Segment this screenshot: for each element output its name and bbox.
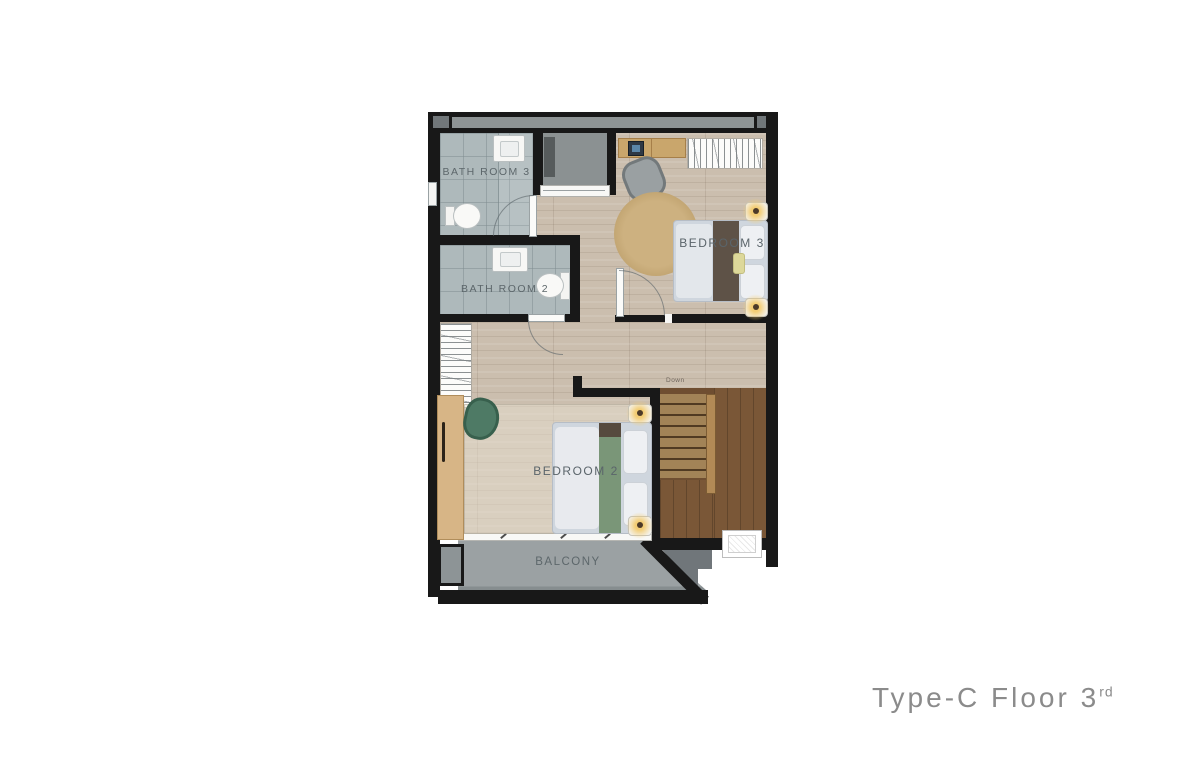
plan-title: Type-C Floor 3rd (872, 682, 1172, 714)
bedroom2-label: BEDROOM 2 (506, 464, 646, 478)
lamp-icon (637, 410, 643, 416)
sink-icon (492, 247, 528, 272)
plan-title-floor-number: 3 (1081, 682, 1100, 713)
wardrobe-handle (442, 422, 445, 462)
monitor-icon (628, 141, 644, 156)
floor-plan-page: BATH ROOM 3 BATH ROOM 2 BEDROOM 3 BEDROO… (0, 0, 1200, 774)
sink-icon (493, 135, 525, 162)
wall-top-infill (452, 117, 754, 128)
wall-bath2-bottom-left (428, 314, 528, 322)
lamp-icon (637, 522, 643, 528)
hanger-wardrobe-icon (687, 138, 763, 169)
ac-unit-detail (728, 535, 756, 553)
wall-bath-horizontal (428, 235, 580, 245)
wall-bedroom2-top (573, 388, 650, 397)
lamp-icon (753, 304, 759, 310)
desk-icon (618, 138, 686, 158)
wall-corner-notch-left (433, 116, 449, 128)
closet-sliding-door (540, 185, 610, 197)
bed-runner-end (599, 423, 621, 437)
wall-bath2-bottom-right (563, 314, 580, 322)
staircase (660, 388, 766, 538)
bathroom3-label: BATH ROOM 3 (440, 166, 533, 178)
closet-floor (543, 133, 607, 185)
stair-treads (660, 394, 706, 478)
wardrobe-icon (437, 395, 464, 540)
toilet-bowl (453, 203, 481, 229)
bedroom3-label: BEDROOM 3 (678, 236, 766, 250)
plan-title-text: Type-C Floor (872, 682, 1070, 713)
stairs-down-label: Down (666, 377, 706, 384)
plan-title-ordinal: rd (1099, 684, 1113, 700)
wall-bath2-right (570, 245, 580, 314)
wall-right (766, 112, 778, 567)
duvet (555, 427, 599, 529)
balcony-label: BALCONY (508, 556, 628, 568)
floor-plan: BATH ROOM 3 BATH ROOM 2 BEDROOM 3 BEDROO… (428, 112, 778, 604)
doorjamb-bedroom3 (665, 314, 672, 323)
balcony-pillar (438, 544, 464, 586)
lamp-icon (753, 208, 759, 214)
closet-sliding-door-track (543, 190, 605, 191)
double-bed-icon (673, 220, 768, 302)
stair-planks-right (714, 388, 766, 538)
desk-divider (651, 139, 652, 157)
bed-runner (599, 423, 621, 533)
wall-balcony-bottom (438, 590, 708, 604)
accent-pillow (733, 253, 745, 274)
ac-unit-icon (722, 530, 762, 558)
sink-basin (500, 141, 519, 157)
sink-basin (500, 252, 521, 267)
monitor-screen (632, 145, 640, 152)
wall-stairs-bottom (650, 538, 726, 550)
bathroom2-label: BATH ROOM 2 (445, 283, 565, 295)
stair-railing (706, 394, 716, 494)
closet-shelf (544, 137, 555, 177)
toilet-icon (445, 203, 481, 227)
balcony-sliding-door (458, 533, 652, 541)
window-left (428, 182, 437, 206)
